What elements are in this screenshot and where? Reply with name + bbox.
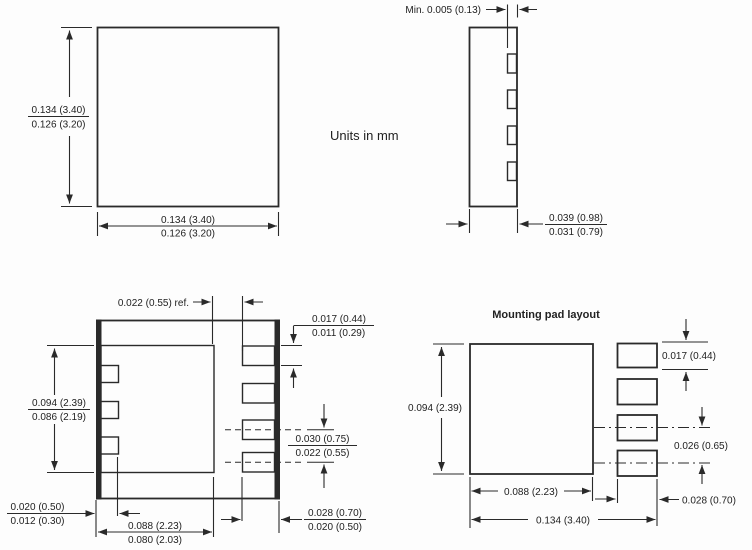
mounting-pad-height-dimension: 0.094 (2.39) (408, 344, 464, 474)
top-view-width-dimension: 0.134 (3.40) 0.126 (3.20) (98, 212, 279, 240)
drawing-svg: 0.134 (3.40) 0.126 (3.20) 0.134 (3.40) 0… (0, 0, 752, 550)
die-pad-height-min-label: 0.086 (2.19) (32, 412, 86, 423)
side-view-terminal (508, 126, 517, 145)
side-terminal-length-min-label: 0.012 (0.30) (11, 516, 65, 527)
bottom-view-right-edge-bar (275, 320, 281, 500)
die-pad-height-max-label: 0.094 (2.39) (32, 398, 86, 409)
terminal-pitch-min-label: 0.022 (0.55) (296, 448, 350, 459)
mounting-terminal-length-label: 0.028 (0.70) (682, 496, 736, 507)
mounting-terminal-width-label: 0.017 (0.44) (662, 351, 716, 362)
top-view-width-max-label: 0.134 (3.40) (161, 215, 215, 226)
mounting-terminal-pad (618, 379, 658, 405)
terminal-width-max-label: 0.017 (0.44) (312, 314, 366, 325)
terminal-offset-label: Min. 0.005 (0.13) (405, 5, 481, 16)
mounting-terminal-width-dimension: 0.017 (0.44) (662, 319, 716, 391)
mounting-pad-height-label: 0.094 (2.39) (408, 403, 462, 414)
pad-gap-ref-label: 0.022 (0.55) ref. (118, 298, 189, 309)
top-view-height-min-label: 0.126 (3.20) (32, 120, 86, 131)
terminal-pitch-dimension: 0.030 (0.75) 0.022 (0.55) (288, 404, 357, 488)
thickness-max-label: 0.039 (0.98) (549, 213, 603, 224)
mounting-pad-layout: Mounting pad layout 0.094 (2.39) 0.017 (… (408, 309, 736, 528)
mounting-pad-width-label: 0.088 (2.23) (504, 487, 558, 498)
top-view-height-dimension: 0.134 (3.40) 0.126 (3.20) (28, 28, 92, 207)
terminal-width-dimension: 0.017 (0.44) 0.011 (0.29) (281, 314, 374, 388)
bottom-view: 0.022 (0.55) ref. 0.017 (0.44) 0.011 (0.… (7, 296, 374, 546)
bottom-view-left-terminal (101, 437, 119, 454)
thickness-min-label: 0.031 (0.79) (549, 227, 603, 238)
terminal-width-min-label: 0.011 (0.29) (312, 328, 365, 339)
mounting-terminal-pitch-dimension: 0.026 (0.65) (674, 407, 728, 484)
mounting-overall-width-label: 0.134 (3.40) (536, 516, 590, 527)
top-view: 0.134 (3.40) 0.126 (3.20) 0.134 (3.40) 0… (28, 28, 279, 240)
terminal-length-min-label: 0.020 (0.50) (308, 522, 362, 533)
mounting-center-pad (470, 344, 593, 474)
side-view-terminal (508, 162, 517, 181)
side-view-thickness-dimension: 0.039 (0.98) 0.031 (0.79) (446, 209, 607, 238)
bottom-view-right-terminal (243, 346, 275, 366)
mounting-terminal-pad (618, 344, 658, 368)
top-view-width-min-label: 0.126 (3.20) (161, 229, 215, 240)
bottom-view-right-terminal (243, 384, 275, 404)
side-view-terminal (508, 54, 517, 73)
side-terminal-length-max-label: 0.020 (0.50) (11, 502, 65, 513)
die-pad-width-max-label: 0.088 (2.23) (128, 521, 182, 532)
bottom-view-left-terminal (101, 402, 119, 419)
bottom-view-left-terminal (101, 366, 119, 383)
mounting-overall-width-dimension: 0.134 (3.40) (472, 516, 656, 527)
mounting-terminal-pitch-label: 0.026 (0.65) (674, 441, 728, 452)
units-note: Units in mm (330, 128, 399, 143)
terminal-pitch-max-label: 0.030 (0.75) (296, 434, 350, 445)
die-pad-height-dimension: 0.094 (2.39) 0.086 (2.19) (28, 346, 94, 473)
mounting-pad-layout-title: Mounting pad layout (492, 309, 600, 321)
terminal-length-max-label: 0.028 (0.70) (308, 508, 362, 519)
top-view-height-max-label: 0.134 (3.40) (32, 105, 86, 116)
package-dimensions-drawing: 0.134 (3.40) 0.126 (3.20) 0.134 (3.40) 0… (0, 0, 752, 550)
die-pad-width-min-label: 0.080 (2.03) (128, 535, 182, 546)
side-view: Min. 0.005 (0.13) 0.039 (0.98) 0.031 (0.… (405, 5, 607, 239)
side-view-terminal (508, 90, 517, 109)
top-view-package-outline (98, 28, 279, 207)
